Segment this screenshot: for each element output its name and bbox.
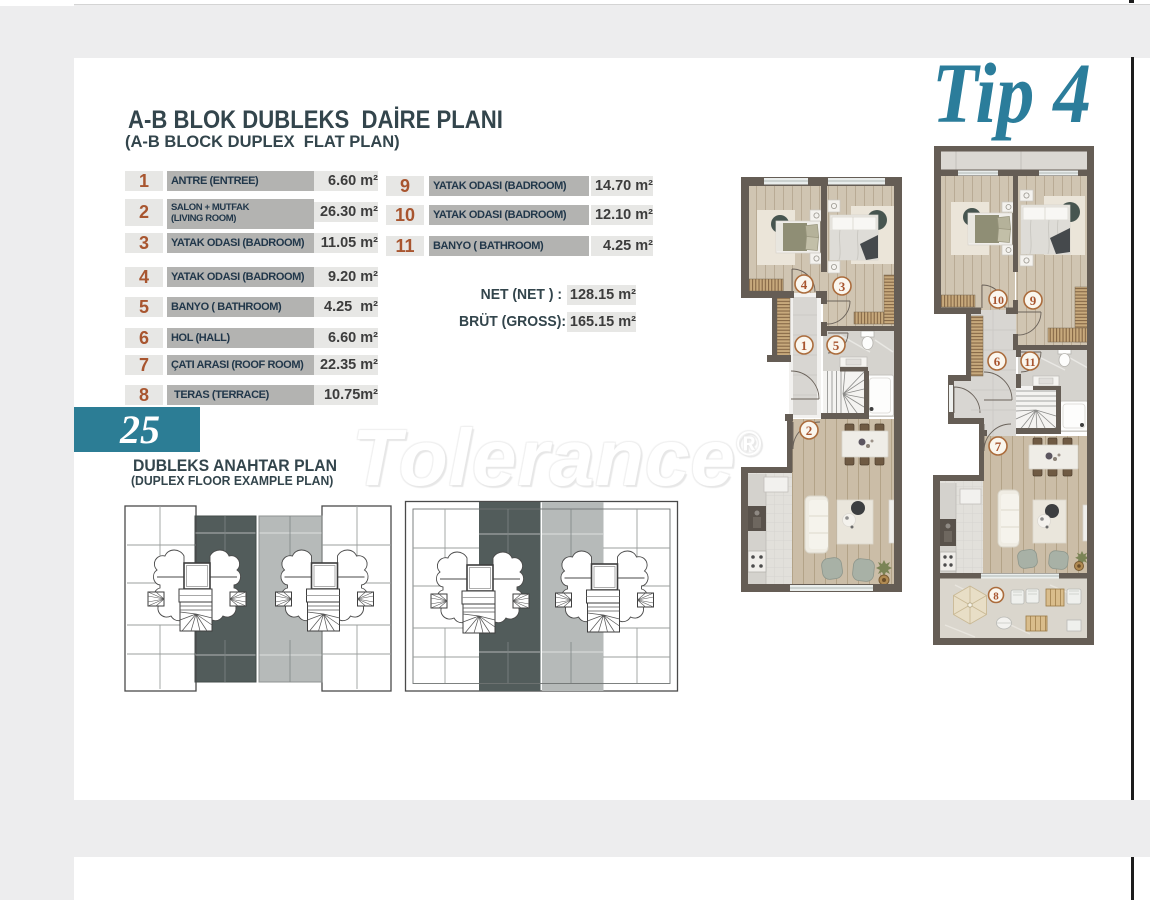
svg-text:2: 2	[806, 423, 813, 438]
svg-text:1: 1	[801, 338, 808, 353]
svg-text:11: 11	[1024, 355, 1035, 369]
svg-text:5: 5	[833, 338, 840, 353]
svg-text:8: 8	[993, 591, 999, 603]
svg-text:4: 4	[801, 277, 808, 292]
svg-text:6: 6	[994, 354, 1001, 369]
svg-text:7: 7	[995, 439, 1002, 454]
svg-text:3: 3	[839, 279, 846, 294]
svg-text:9: 9	[1030, 293, 1037, 308]
svg-text:10: 10	[992, 293, 1004, 307]
